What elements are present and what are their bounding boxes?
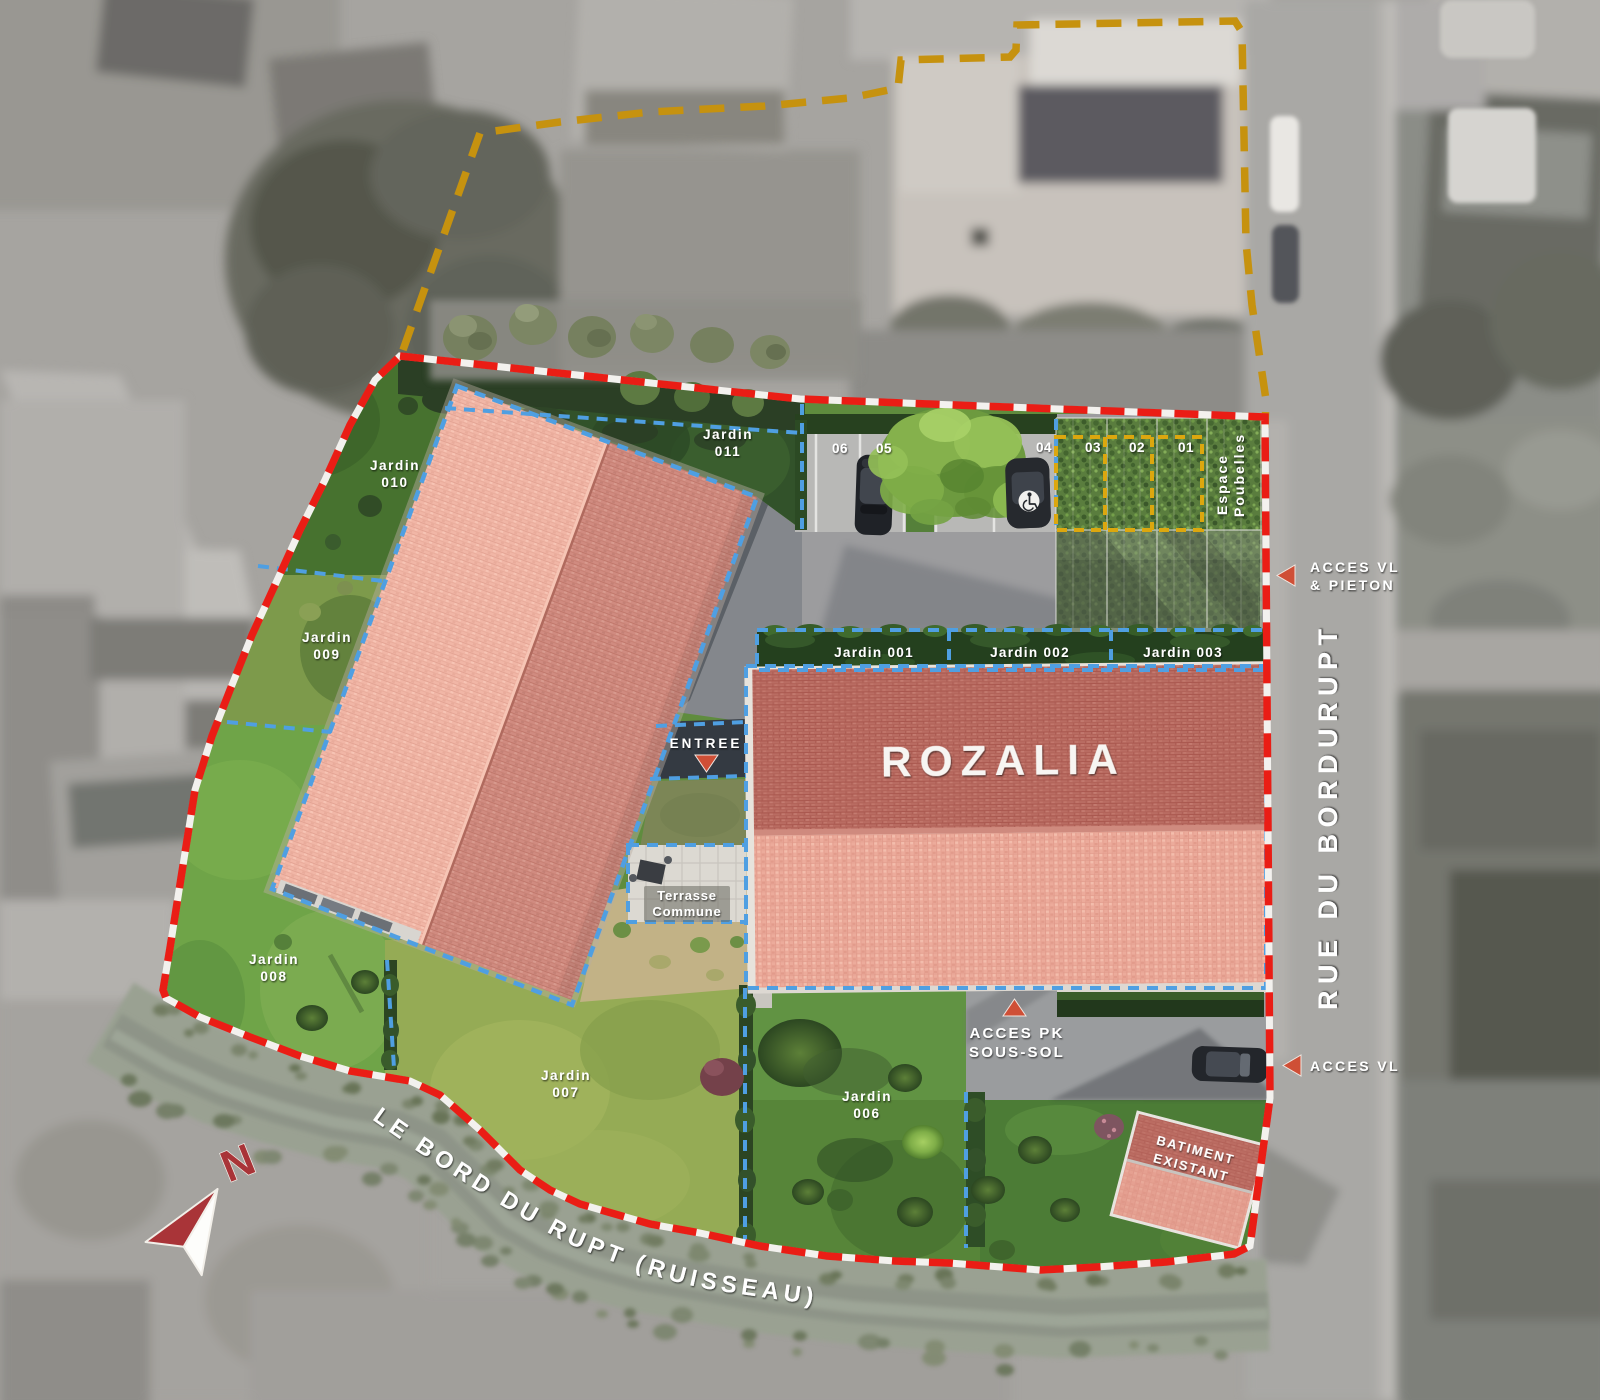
svg-text:Jardin: Jardin [842, 1089, 892, 1104]
svg-text:Jardin 002: Jardin 002 [990, 645, 1070, 660]
svg-text:007: 007 [552, 1085, 579, 1100]
svg-text:Jardin: Jardin [302, 630, 352, 645]
svg-text:& PIETON: & PIETON [1310, 577, 1395, 593]
svg-text:Poubelles: Poubelles [1231, 433, 1247, 517]
svg-text:RUE DU BORDURUPT: RUE DU BORDURUPT [1313, 623, 1343, 1011]
svg-text:06: 06 [832, 441, 848, 456]
svg-text:011: 011 [715, 444, 742, 459]
svg-text:Jardin: Jardin [703, 427, 753, 442]
svg-text:03: 03 [1085, 440, 1101, 455]
svg-text:Espace: Espace [1214, 454, 1230, 515]
svg-text:ROZALIA: ROZALIA [881, 737, 1126, 787]
svg-text:Jardin: Jardin [249, 952, 299, 967]
svg-text:Jardin 003: Jardin 003 [1143, 645, 1223, 660]
svg-text:02: 02 [1129, 440, 1145, 455]
svg-text:009: 009 [313, 647, 340, 662]
svg-text:ACCES VL: ACCES VL [1310, 559, 1400, 575]
svg-text:Terrasse: Terrasse [657, 888, 717, 903]
svg-text:SOUS-SOL: SOUS-SOL [969, 1044, 1065, 1061]
svg-text:05: 05 [876, 441, 892, 456]
svg-text:01: 01 [1178, 440, 1194, 455]
svg-text:010: 010 [381, 475, 408, 490]
svg-text:Commune: Commune [652, 904, 721, 919]
svg-text:006: 006 [853, 1106, 880, 1121]
svg-text:04: 04 [1036, 440, 1052, 455]
svg-text:Jardin 001: Jardin 001 [834, 645, 914, 660]
svg-text:Jardin: Jardin [370, 458, 420, 473]
svg-text:ACCES PK: ACCES PK [969, 1025, 1064, 1042]
svg-text:ENTREE: ENTREE [670, 736, 743, 751]
svg-text:ACCES VL: ACCES VL [1310, 1058, 1400, 1074]
svg-text:Jardin: Jardin [541, 1068, 591, 1083]
svg-text:008: 008 [260, 969, 287, 984]
